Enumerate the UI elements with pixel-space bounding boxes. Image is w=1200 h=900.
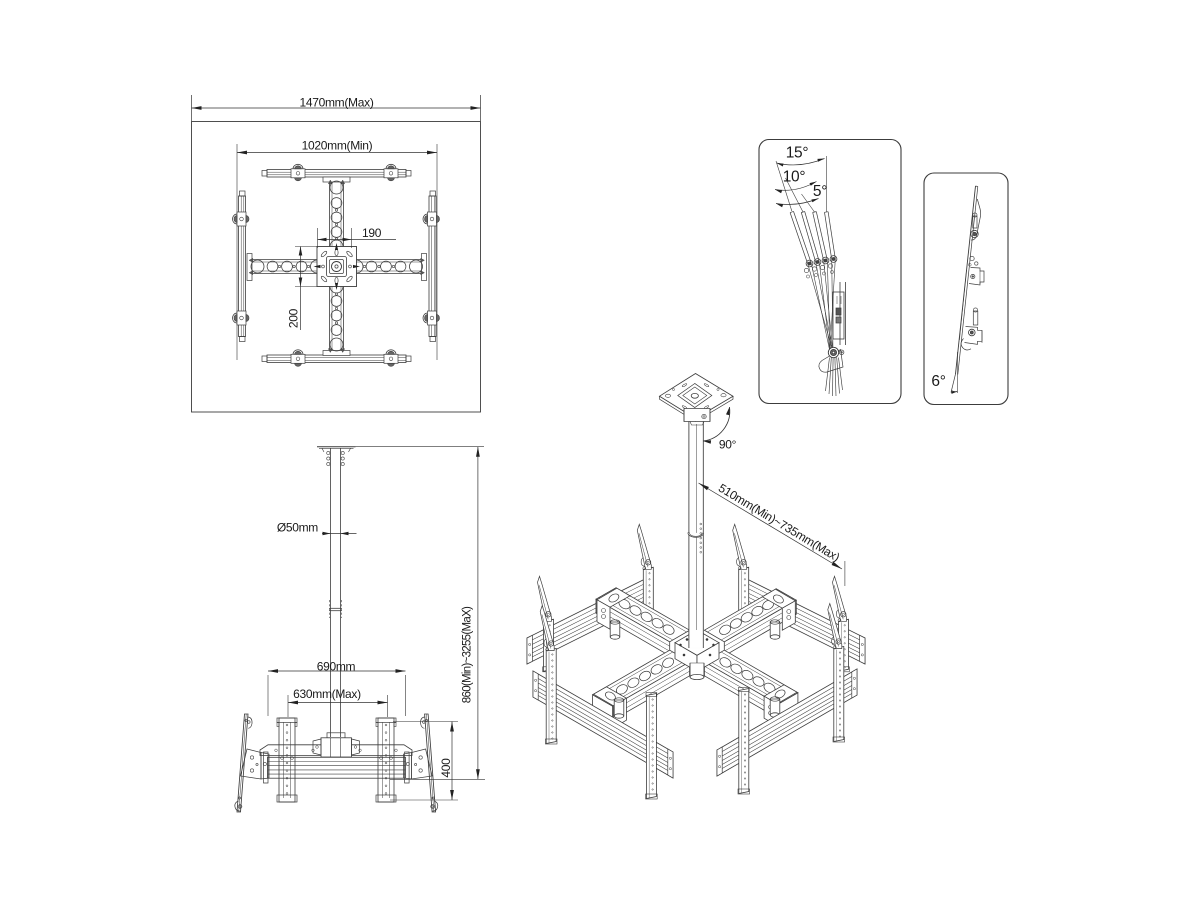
svg-text:1020mm(Min): 1020mm(Min) bbox=[302, 139, 373, 153]
svg-text:6°: 6° bbox=[931, 373, 945, 390]
svg-text:15°: 15° bbox=[786, 145, 809, 162]
svg-text:200: 200 bbox=[287, 308, 301, 328]
svg-text:860(Min)~3255(MaX): 860(Min)~3255(MaX) bbox=[462, 606, 474, 703]
svg-text:Ø50mm: Ø50mm bbox=[277, 521, 318, 535]
svg-text:10°: 10° bbox=[783, 169, 806, 186]
svg-text:690mm: 690mm bbox=[317, 660, 356, 674]
svg-text:400: 400 bbox=[439, 758, 453, 778]
svg-text:630mm(Max): 630mm(Max) bbox=[293, 687, 361, 701]
svg-text:5°: 5° bbox=[813, 183, 827, 200]
svg-text:90°: 90° bbox=[719, 438, 737, 452]
svg-text:190: 190 bbox=[362, 226, 382, 240]
svg-text:1470mm(Max): 1470mm(Max) bbox=[299, 96, 373, 110]
